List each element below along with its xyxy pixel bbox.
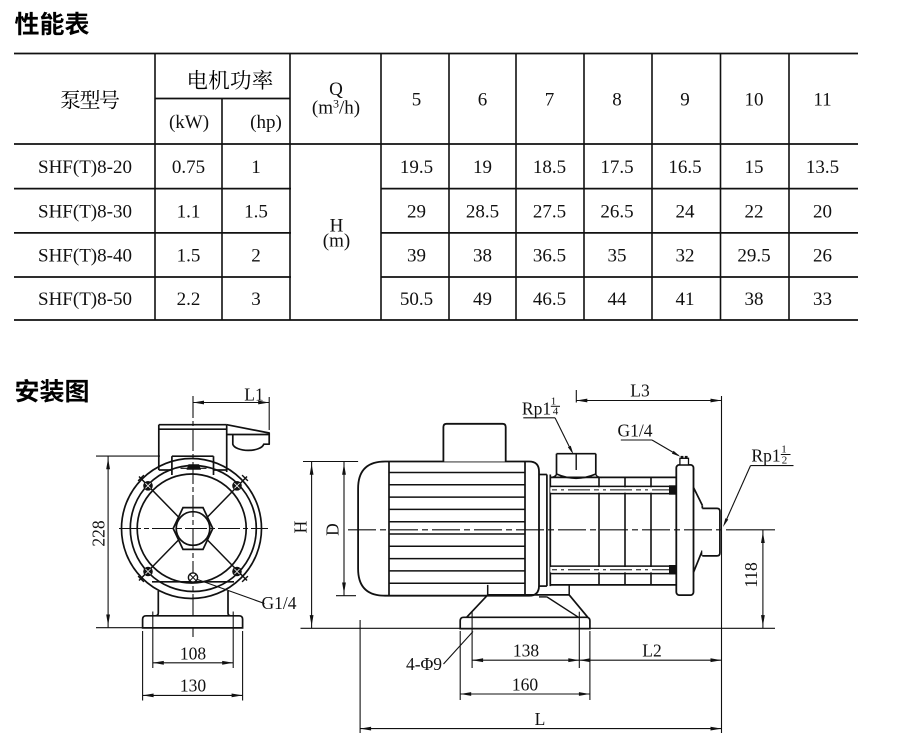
svg-text:D: D <box>323 523 343 536</box>
svg-text:1.5: 1.5 <box>177 246 201 267</box>
svg-text:(m): (m) <box>323 231 350 252</box>
svg-text:46.5: 46.5 <box>533 289 566 310</box>
svg-text:26.5: 26.5 <box>600 201 633 222</box>
svg-text:29.5: 29.5 <box>737 246 770 267</box>
svg-text:Rp1: Rp1 <box>522 399 551 419</box>
svg-text:24: 24 <box>676 201 696 222</box>
svg-text:2: 2 <box>251 246 261 267</box>
svg-text:Rp1: Rp1 <box>751 446 780 466</box>
svg-text:(kW): (kW) <box>169 112 209 133</box>
svg-text:16.5: 16.5 <box>668 157 701 178</box>
svg-text:G1/4: G1/4 <box>618 421 653 441</box>
svg-text:27.5: 27.5 <box>533 201 566 222</box>
svg-text:SHF(T)8-50: SHF(T)8-50 <box>38 289 132 310</box>
svg-text:8: 8 <box>612 90 622 111</box>
svg-text:35: 35 <box>608 246 627 267</box>
svg-text:1.1: 1.1 <box>177 201 201 222</box>
svg-text:38: 38 <box>745 289 764 310</box>
svg-text:4-Φ9: 4-Φ9 <box>406 654 442 674</box>
svg-text:(m3/h): (m3/h) <box>312 97 360 119</box>
svg-text:1.5: 1.5 <box>244 201 268 222</box>
svg-text:50.5: 50.5 <box>400 289 433 310</box>
svg-text:20: 20 <box>813 201 832 222</box>
svg-text:11: 11 <box>813 90 831 111</box>
svg-text:2.2: 2.2 <box>177 289 201 310</box>
svg-text:6: 6 <box>478 90 488 111</box>
svg-text:7: 7 <box>545 90 555 111</box>
svg-text:SHF(T)8-20: SHF(T)8-20 <box>38 157 132 178</box>
svg-text:17.5: 17.5 <box>600 157 633 178</box>
svg-text:18.5: 18.5 <box>533 157 566 178</box>
svg-text:228: 228 <box>89 520 109 547</box>
svg-text:H: H <box>291 520 311 533</box>
svg-text:38: 38 <box>473 246 492 267</box>
svg-text:29: 29 <box>407 201 426 222</box>
svg-text:26: 26 <box>813 246 832 267</box>
svg-text:130: 130 <box>180 676 207 696</box>
svg-text:138: 138 <box>513 641 540 661</box>
svg-text:1: 1 <box>251 157 261 178</box>
svg-text:4: 4 <box>553 406 559 418</box>
svg-text:(hp): (hp) <box>250 112 282 133</box>
svg-text:22: 22 <box>745 201 764 222</box>
svg-text:108: 108 <box>180 644 207 664</box>
svg-text:SHF(T)8-30: SHF(T)8-30 <box>38 201 132 222</box>
svg-text:1: 1 <box>781 443 787 455</box>
svg-text:13.5: 13.5 <box>806 157 839 178</box>
svg-text:44: 44 <box>608 289 628 310</box>
svg-text:L3: L3 <box>630 381 650 401</box>
svg-text:160: 160 <box>512 675 539 695</box>
svg-text:33: 33 <box>813 289 832 310</box>
svg-text:G1/4: G1/4 <box>262 593 297 613</box>
svg-text:10: 10 <box>745 90 764 111</box>
svg-text:118: 118 <box>741 562 761 588</box>
svg-text:5: 5 <box>412 90 422 111</box>
svg-text:19.5: 19.5 <box>400 157 433 178</box>
svg-text:19: 19 <box>473 157 492 178</box>
svg-text:32: 32 <box>676 246 695 267</box>
svg-text:L1: L1 <box>244 385 263 405</box>
svg-text:L: L <box>535 709 546 729</box>
svg-text:49: 49 <box>473 289 492 310</box>
svg-text:2: 2 <box>782 455 788 467</box>
svg-text:0.75: 0.75 <box>172 157 205 178</box>
svg-text:36.5: 36.5 <box>533 246 566 267</box>
svg-text:39: 39 <box>407 246 426 267</box>
svg-text:9: 9 <box>680 90 690 111</box>
svg-text:41: 41 <box>676 289 695 310</box>
svg-text:15: 15 <box>745 157 764 178</box>
svg-text:3: 3 <box>251 289 261 310</box>
svg-text:SHF(T)8-40: SHF(T)8-40 <box>38 246 132 267</box>
svg-text:L2: L2 <box>642 641 661 661</box>
svg-text:28.5: 28.5 <box>466 201 499 222</box>
